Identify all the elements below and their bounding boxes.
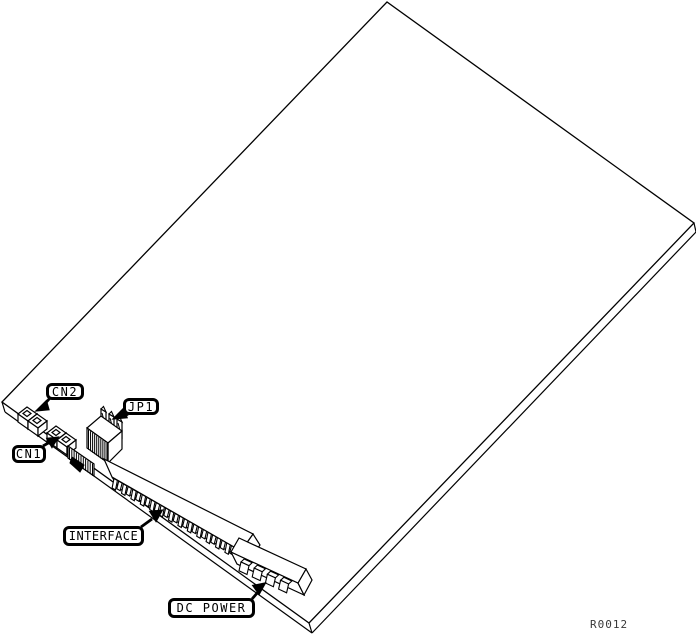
leader-dc-power [252, 592, 258, 599]
callout-interface: INTERFACE [63, 526, 144, 546]
leader-interface [141, 519, 152, 527]
callout-cn2: CN2 [46, 383, 84, 400]
callout-cn1-text: CN1 [16, 448, 42, 460]
callout-cn1: CN1 [12, 445, 46, 463]
callout-interface-text: INTERFACE [69, 530, 139, 542]
callout-dc-power-text: DC POWER [177, 602, 247, 614]
callout-jp1: JP1 [123, 398, 159, 415]
figure-reference: R0012 [590, 618, 628, 631]
callout-jp1-text: JP1 [128, 401, 154, 413]
callout-dc-power: DC POWER [168, 598, 255, 618]
callout-cn2-text: CN2 [52, 386, 78, 398]
figure-canvas: CN2 JP1 CN1 INTERFACE DC POWER R0012 [0, 0, 696, 640]
